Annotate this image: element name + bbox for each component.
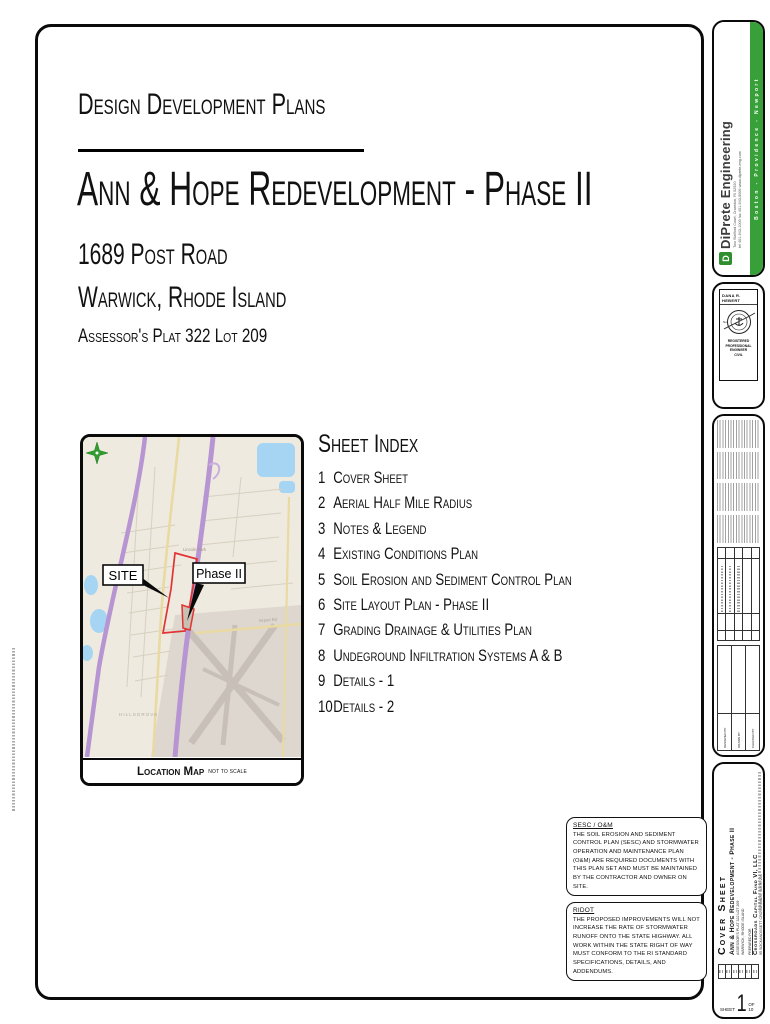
map-caption: Location Map NOT TO SCALE: [83, 758, 301, 783]
firm-address: Two Stafford Court, Cranston, RI 02920 t…: [733, 22, 743, 248]
title-underline: [78, 149, 364, 152]
sheet-index-title: Sheet Index: [318, 430, 447, 459]
strip-attribute-cells: [718, 964, 759, 979]
sheet-index-item: 8Undeground Infiltration Systems A & B: [318, 648, 572, 665]
title-strip-panel: Cover Sheet Ann & Hope Redevelopment - P…: [712, 762, 765, 1019]
fine-print-notes: [717, 420, 760, 543]
sheet-of-label: OF 10: [748, 1002, 757, 1012]
sesc-om-note-body: THE SOIL EROSION AND SEDIMENT CONTROL PL…: [573, 831, 700, 892]
sheet-number: 1: [737, 993, 747, 1015]
firm-name: DiPrete Engineering: [718, 121, 733, 249]
strip-city: WARWICK, RHODE ISLAND: [741, 769, 746, 955]
map-label-lincoln-park: Lincoln Park: [183, 547, 207, 552]
firm-offices-bar: Boston - Providence - Newport: [750, 22, 763, 275]
sheet-index-item: 6Site Layout Plan - Phase II: [318, 597, 572, 614]
ridot-note-title: RIDOT: [573, 907, 700, 914]
sheet-index-item: 3Notes & Legend: [318, 521, 572, 538]
diprete-logo-icon: D: [719, 252, 732, 265]
location-map: Lincoln Park HILLSGROVE Airport Rd SITE …: [83, 437, 301, 757]
map-label-hillsgrove: HILLSGROVE: [119, 712, 158, 717]
sheet-index-item: 5Soil Erosion and Sediment Control Plan: [318, 572, 572, 589]
revision-panel: DESIGNED BY DRAWN BY CHECKED BY: [712, 414, 765, 757]
drawn-by-label: DRAWN BY: [737, 714, 741, 750]
strip-client-city: CRANSTON, RI 02920: [763, 769, 765, 955]
sheet-index-item: 7Grading Drainage & Utilities Plan: [318, 622, 572, 639]
strip-sheet-title: Cover Sheet: [716, 769, 728, 955]
assessor-plat-lot: Assessor's Plat 322 Lot 209: [78, 326, 315, 348]
pe-name: DANA R. HEBERT: [720, 293, 757, 305]
project-city-state: Warwick, Rhode Island: [78, 281, 376, 315]
sheet-index-item: 4Existing Conditions Plan: [318, 546, 572, 563]
checked-by-label: CHECKED BY: [751, 714, 755, 750]
project-title: Ann & Hope Redevelopment - Phase II: [77, 162, 770, 217]
sheet-index-item: 10Details - 2: [318, 699, 572, 716]
designed-by-label: DESIGNED BY: [723, 714, 727, 750]
map-caption-title: Location Map: [137, 766, 204, 778]
svg-text:No.: No.: [723, 320, 728, 324]
sesc-om-note-title: SESC / O&M: [573, 822, 700, 829]
ridot-note: RIDOT THE PROPOSED IMPROVEMENTS WILL NOT…: [566, 902, 707, 981]
strip-copyright-microtext: [758, 772, 761, 912]
revision-table: [717, 547, 760, 641]
plan-type-text: Design Development Plans: [78, 88, 326, 122]
sheet-label: SHEET: [720, 1007, 735, 1012]
pe-stamp: DANA R. HEBERT No. REGISTERED PROFESSION…: [719, 289, 758, 381]
project-title-text: Ann & Hope Redevelopment - Phase II: [77, 162, 593, 217]
sheet-index-item: 2Aerial Half Mile Radius: [318, 495, 572, 512]
sheet-index-list: 1Cover Sheet 2Aerial Half Mile Radius 3N…: [318, 470, 635, 715]
pe-seal-icon: No.: [722, 305, 756, 339]
location-map-panel: Lincoln Park HILLSGROVE Airport Rd SITE …: [80, 434, 304, 786]
map-caption-scale-note: NOT TO SCALE: [208, 769, 247, 775]
project-address: 1689 Post Road: [78, 238, 292, 272]
plan-type-title: Design Development Plans: [78, 88, 422, 122]
sheet-index-item: 9Details - 1: [318, 673, 572, 690]
pe-stamp-panel: DANA R. HEBERT No. REGISTERED PROFESSION…: [712, 282, 765, 409]
firm-panel: D DiPrete Engineering Two Stafford Court…: [712, 20, 765, 277]
ridot-note-body: THE PROPOSED IMPROVEMENTS WILL NOT INCRE…: [573, 916, 700, 977]
drawing-info-table: DESIGNED BY DRAWN BY CHECKED BY: [717, 645, 760, 751]
phase2-callout-label: Phase II: [196, 567, 242, 581]
strip-project-name: Ann & Hope Redevelopment - Phase II: [729, 769, 736, 955]
sheet-index-item: 1Cover Sheet: [318, 470, 572, 487]
sesc-om-note: SESC / O&M THE SOIL EROSION AND SEDIMENT…: [566, 817, 707, 896]
margin-copyright-microtext: [12, 648, 15, 812]
site-callout-label: SITE: [109, 568, 138, 583]
pe-registration-text: REGISTERED PROFESSIONAL ENGINEER CIVIL: [720, 339, 757, 357]
sheet-number-row: SHEET 1 OF 10: [717, 983, 760, 1015]
